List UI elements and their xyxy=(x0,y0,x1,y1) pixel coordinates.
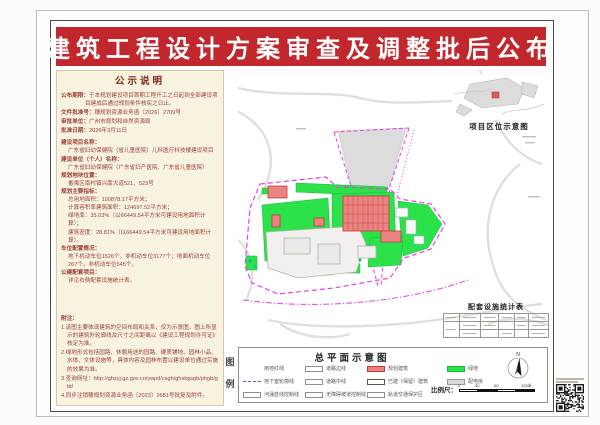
qr-caption-line xyxy=(556,378,584,380)
legend-item-basement-outline: 地下室轮廓线 xyxy=(243,378,305,385)
compass-n-label: N xyxy=(516,352,520,358)
scale-label: 比例尺： xyxy=(431,384,457,394)
location-inset-label: 项目区位示意图 xyxy=(450,121,548,132)
legend-item-planned-building: 规划建筑 xyxy=(367,365,447,372)
facilities-table-title: 配套设施统计表 xyxy=(443,302,549,312)
legend-item-road-edge: 道路边线 xyxy=(305,365,367,372)
indicator-green-rate: 绿地率：35.03%（以66449.54平方米可建设用地面积计算）； xyxy=(61,212,219,228)
notice-line-period: 公布期限：于本规划建设项目首期工程开工之日起到全部建设项目建成后通过规划条件核实… xyxy=(61,92,219,108)
qr-block xyxy=(556,378,584,412)
notes-block: 附注： 1.该图主要体现建筑的空间布局和关系，仅为示意图，图上所显示的建筑外轮廓… xyxy=(61,315,219,401)
project-info: 建设项目名称：广东省妇幼保健院（省儿童医院）儿科医疗科技楼建设项目 建设单位（个… xyxy=(61,139,219,285)
plan-footer-band: 总平面示意图 用地红线 道路边线 规划建筑 绿地 地下室轮廓线 道路中线 已建（… xyxy=(238,347,548,403)
legend-item-blueline: 河涌蓝线控制线 xyxy=(243,391,305,398)
qr-caption-line xyxy=(556,381,578,383)
owner-name: 建设单位（个人）名称：广东省妇幼保健院（广东省妇产医院、广东省儿童医院） xyxy=(61,156,219,172)
road-edge-swatch xyxy=(305,366,323,372)
legend-title: 图例 xyxy=(224,358,236,402)
facilities-table xyxy=(443,313,549,338)
legend: 用地红线 道路边线 规划建筑 绿地 地下室轮廓线 道路中线 已建（保留）建筑 配… xyxy=(243,362,499,401)
legend-item-accessible-ramp: 无障碍坡道控制线 xyxy=(305,391,367,398)
scale-bar-graphic: 0 30 60 120米 xyxy=(459,384,535,394)
note-3: 3.查询网址：http://ghzyj.gz.gov.cn/ywpd/csgh/… xyxy=(61,375,219,391)
qr-code xyxy=(556,384,584,412)
green-swatch xyxy=(447,366,465,372)
note-4: 4.同步注销穗规划资源业务函〔2023〕2681号批复及附件。 xyxy=(61,392,219,400)
north-compass: N xyxy=(505,351,531,381)
page-title: 建筑工程设计方案审查及调整批后公布 xyxy=(56,27,546,66)
road-center-swatch xyxy=(305,379,323,385)
note-1: 1.该图主要体现建筑的空间布局和关系，仅为示意图，图上所显示的建筑外轮廓线及尺寸… xyxy=(61,324,219,348)
site-location: 规划地块位置：番禺区南村镇兴南大道521、523号 xyxy=(61,172,219,188)
accessible-ramp-swatch xyxy=(305,392,323,398)
facilities-table-block: 配套设施统计表 xyxy=(443,302,549,338)
project-name: 建设项目名称：广东省妇幼保健院（省儿童医院）儿科医疗科技楼建设项目 xyxy=(61,139,219,155)
redline-swatch xyxy=(243,368,261,369)
indicator-density: 建筑密度：28.81%（以66449.54平方米可建设用地面积计算）。 xyxy=(61,229,219,245)
planned-building-swatch xyxy=(367,366,385,372)
legend-item-green: 绿地 xyxy=(447,365,499,372)
public-facilities: 公建配套项目：详见右侧配套设施统计表。 xyxy=(61,269,219,285)
blueline-swatch xyxy=(243,392,261,398)
notes-header: 附注： xyxy=(61,315,219,323)
notice-line-doc-number: 文件批准号：穗规划资源业务函〔2026〕2709号 xyxy=(61,109,219,117)
note-2: 2.绿地形式包括园路、休憩用途的园路、硬质铺地、园林小品、水体、文体设施等，具体… xyxy=(61,349,219,373)
legend-item-road-center: 道路中线 xyxy=(305,378,367,385)
basement-outline-swatch xyxy=(243,381,261,382)
location-inset-map xyxy=(452,74,546,120)
notice-header: 公示说明 xyxy=(61,75,219,89)
notice-panel: 公示说明 公布期限：于本规划建设项目首期工程开工之日起到全部建设项目建成后通过规… xyxy=(56,70,224,406)
indicator-floor-area: 计算容积率建筑面积：124697.52平方米； xyxy=(61,204,219,212)
indicator-land-area: 总用地面积：100878.17平方米； xyxy=(61,196,219,204)
site-marker xyxy=(492,92,499,98)
notice-line-approval-date: 批准日期：2026年3月11日 xyxy=(61,127,219,135)
rail-protection-swatch xyxy=(367,392,385,398)
scale-bar: 比例尺： 0 30 60 120米 xyxy=(431,384,535,394)
parking-info: 车位配置情况：地下机动车位1526个，非机动车位3177个；地面机动车位267个… xyxy=(61,245,219,269)
existing-building-swatch xyxy=(367,379,385,385)
notice-line-authority: 审批单位：广州市规划和自然资源局 xyxy=(61,118,219,126)
legend-item-site-redline: 用地红线 xyxy=(243,365,305,372)
key-indicators: 规划主要指标： 总用地面积：100878.17平方米； 计算容积率建筑面积：12… xyxy=(61,188,219,245)
